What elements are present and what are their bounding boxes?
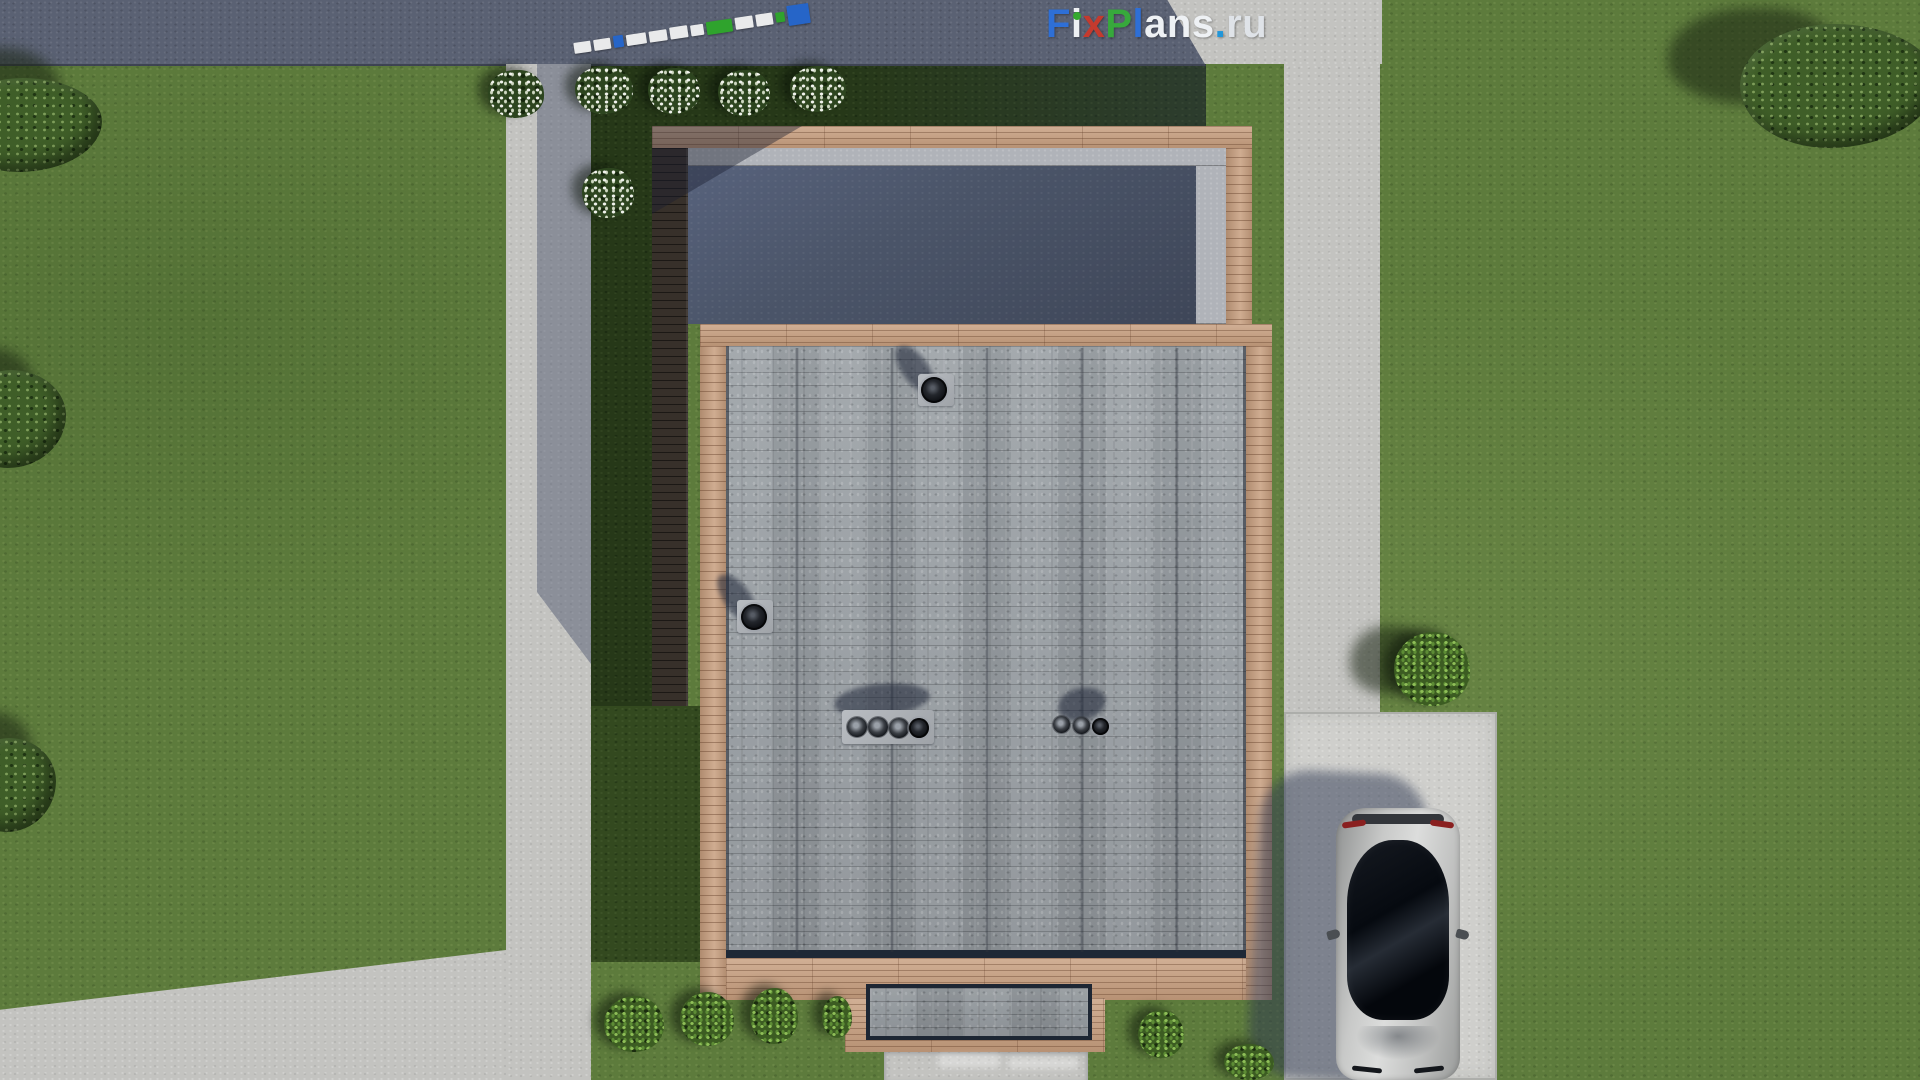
vent-ring [1073,717,1090,734]
vent-ring [1092,718,1109,735]
bush-green [1224,1044,1274,1080]
flat-roof-membrane [688,166,1196,324]
bush-white [790,66,846,112]
bush-green [1138,1010,1184,1058]
main-roof-wood-trim-left [700,346,726,1000]
main-roof-wood-trim-top [700,324,1272,346]
bush-green [822,996,852,1038]
marker-segment [613,35,625,48]
site-plan-render: FixPlans.ru [0,0,1920,1080]
roof-seam [795,348,799,952]
marker-segment [593,37,611,50]
logo: FixPlans.ru [1046,4,1267,44]
marker-segment [690,23,704,36]
marker-segment [775,12,785,23]
flat-roof-parapet-right [1196,166,1226,324]
shaded-garden-bed-left-lower [591,706,702,962]
car [1336,808,1460,1080]
vent-ring [741,604,767,630]
vent-ring [868,717,888,737]
sidewalk-left [506,64,591,1080]
logo-letter: l [1133,2,1145,46]
vent-ring [909,718,929,738]
porch-shingle-inset [866,984,1092,1040]
bush-green [680,992,734,1046]
marker-segment [786,3,811,26]
marker-segment [626,32,647,46]
tree-canopy [1740,24,1920,148]
logo-letter: i [1071,2,1083,46]
car-hood [1356,1026,1440,1060]
bush-white [648,68,700,114]
logo-letter: a [1144,2,1167,46]
logo-letter: n [1167,2,1192,46]
roof-seam [1080,348,1084,952]
marker-segment [755,12,774,26]
building-shadow-on-sidewalk [537,64,591,664]
path-scuff [938,1054,1000,1068]
vent-ring [1053,716,1070,733]
roof-edge-line-left [726,346,729,950]
bush-white [582,168,634,218]
roof-edge-line-right [1243,346,1246,950]
vent-ring [889,718,909,738]
marker-segment [648,29,667,43]
bush-green [750,988,798,1044]
flat-roof-wood-trim-right [1226,148,1252,324]
logo-letter: u [1242,2,1267,46]
marker-segment [669,25,689,40]
logo-letter: s [1192,2,1215,46]
flat-roof-parapet-top [688,148,1226,166]
roof-seam [890,348,894,952]
roof-seam [985,348,989,952]
logo-letter: x [1083,2,1106,46]
bush-green [604,996,664,1052]
vent-ring [921,377,947,403]
marker-segment [573,40,591,53]
bush-green [1394,632,1470,706]
logo-letter: r [1226,2,1242,46]
bush-white [575,66,633,114]
sidewalk-right [1284,64,1380,712]
car-roof-glass [1347,840,1449,1020]
flat-roof-section [652,126,1252,324]
path-scuff [1008,1057,1078,1069]
roof-seam [1175,348,1179,952]
bush-white [718,70,770,116]
porch-roof [845,984,1105,1052]
bush-white [488,70,544,118]
logo-letter: F [1046,2,1071,46]
marker-segment [706,18,734,35]
logo-letter: P [1105,2,1132,46]
logo-dot [1073,12,1081,20]
logo-letter: . [1215,2,1227,46]
vent-ring [847,717,867,737]
marker-segment [734,15,754,30]
